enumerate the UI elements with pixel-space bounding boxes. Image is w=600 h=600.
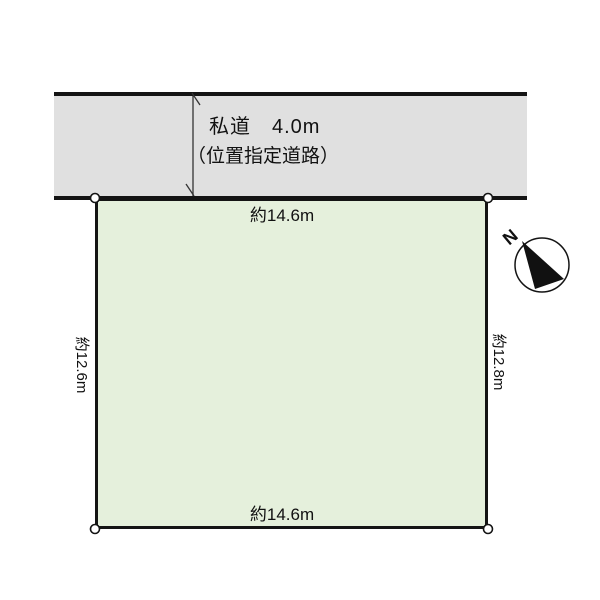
compass-circle [515,238,569,292]
compass: N [499,225,569,292]
road-label: 私道 4.0m [209,116,320,138]
plot-right-dimension-label: 約12.8m [490,322,506,402]
road-type-label: （位置指定道路） [187,146,339,168]
land-plot [95,198,488,529]
plot-top-dimension-label: 約14.6m [182,207,382,225]
plot-bottom-dimension-label: 約14.6m [182,506,382,524]
plot-left-dimension-label: 約12.6m [73,325,89,405]
site-plan-diagram: 私道 4.0m （位置指定道路） 約14.6m 約14.6m 約12.6m 約1… [0,0,600,600]
north-arrow-icon [522,241,564,289]
north-label: N [499,225,522,249]
